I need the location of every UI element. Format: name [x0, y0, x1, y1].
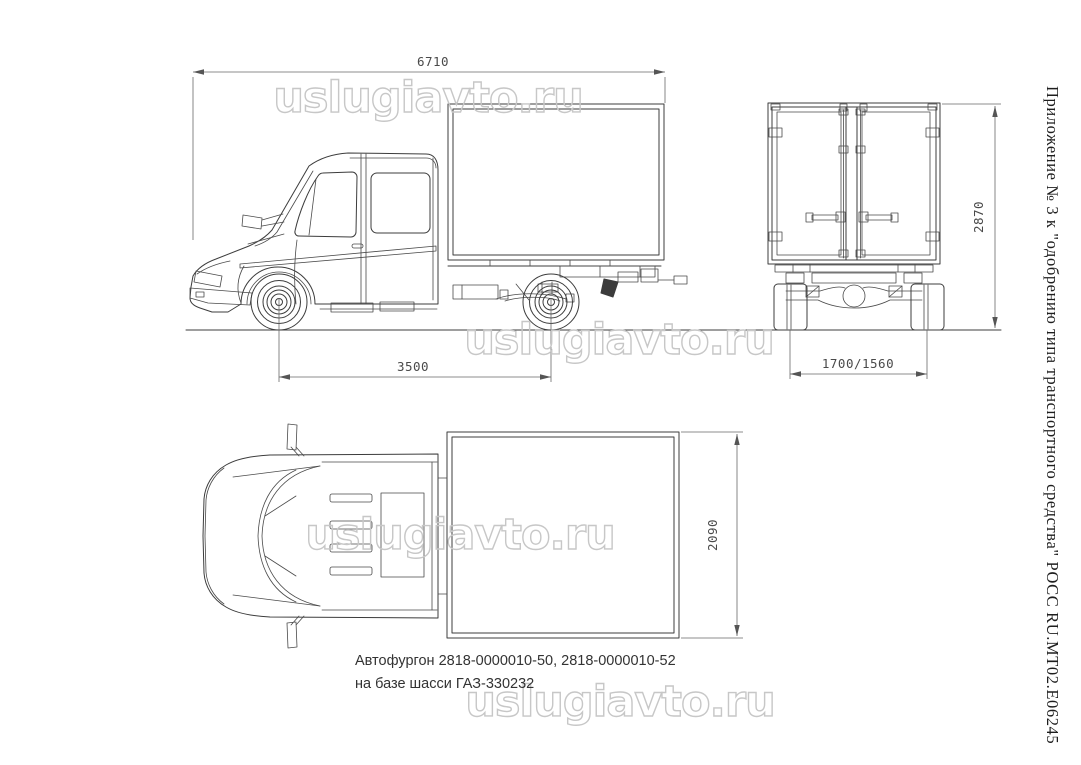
- rear-view: [768, 103, 944, 330]
- step-board: [380, 302, 414, 311]
- dim-track-value: 1700/1560: [822, 356, 894, 371]
- side-moulding: [240, 246, 436, 268]
- caption-line-2: на базе шасси ГАЗ-330232: [355, 673, 676, 696]
- dim-wheelbase-value: 3500: [397, 359, 429, 374]
- door-handles: [806, 212, 898, 222]
- chassis-side: [453, 282, 574, 302]
- dim-body-width-value: 2090: [705, 519, 720, 551]
- mirror-top-left: [287, 424, 304, 456]
- dimension-track: 1700/1560: [790, 330, 927, 379]
- watermark-text: uslugiavto.ru: [464, 315, 773, 365]
- differential: [843, 285, 865, 307]
- side-mirror: [242, 214, 284, 229]
- watermark-text: uslugiavto.ru: [305, 510, 614, 560]
- dimension-overall-height: 2870: [942, 104, 1001, 328]
- chassis-rear: [775, 265, 933, 308]
- wipers-top: [265, 496, 296, 576]
- cargo-box-side: [448, 104, 687, 297]
- cargo-box-rear: [768, 103, 940, 264]
- side-view: [190, 104, 687, 330]
- mud-flap: [601, 279, 618, 297]
- approval-note: Приложение № 3 к "одобрению типа транспо…: [1040, 86, 1062, 716]
- door-hinges: [769, 104, 939, 241]
- vent-window-divider: [309, 179, 316, 235]
- mirror-top-right: [287, 616, 304, 648]
- page: { "drawing": { "caption": { "line1": "Ав…: [0, 0, 1081, 765]
- cab-side: [190, 153, 438, 312]
- fuel-tank: [453, 285, 498, 299]
- dim-overall-height-value: 2870: [971, 201, 986, 233]
- door-lock-brackets: [839, 109, 865, 257]
- watermark-text: uslugiavto.ru: [273, 73, 582, 123]
- dim-overall-length-value: 6710: [417, 54, 449, 69]
- caption: Автофургон 2818-0000010-50, 2818-0000010…: [355, 650, 676, 696]
- front-bumper: [190, 288, 252, 305]
- rear-cab-window: [371, 173, 430, 233]
- dimension-body-width: 2090: [681, 432, 743, 638]
- caption-line-1: Автофургон 2818-0000010-50, 2818-0000010…: [355, 650, 676, 673]
- watermarks: uslugiavto.ru uslugiavto.ru uslugiavto.r…: [273, 73, 774, 727]
- front-door-window: [295, 172, 357, 237]
